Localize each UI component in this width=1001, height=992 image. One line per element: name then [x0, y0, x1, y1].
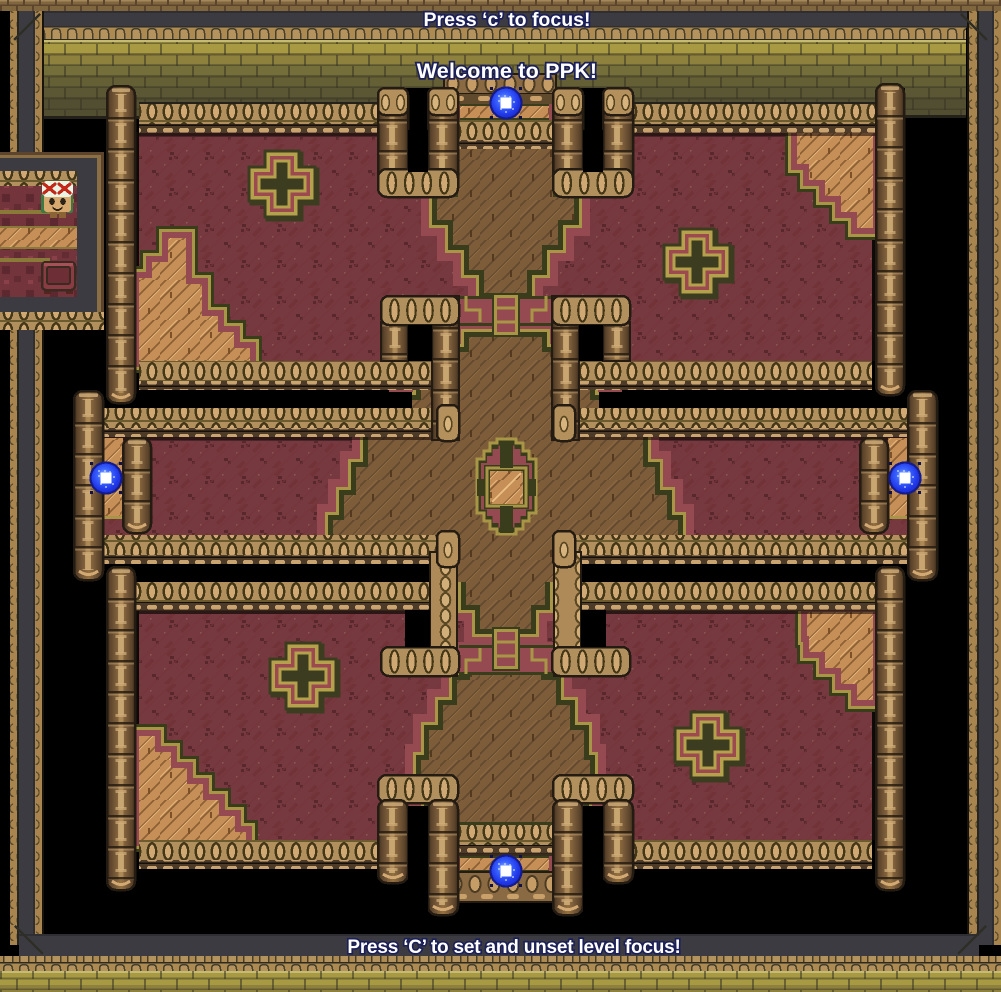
- svg-text:Press ‘c’ to focus!: Press ‘c’ to focus!: [424, 9, 591, 31]
- svg-text:Welcome to PPK!: Welcome to PPK!: [417, 59, 598, 83]
- svg-text:Press ‘C’ to set and unset lev: Press ‘C’ to set and unset level focus!: [347, 937, 680, 958]
